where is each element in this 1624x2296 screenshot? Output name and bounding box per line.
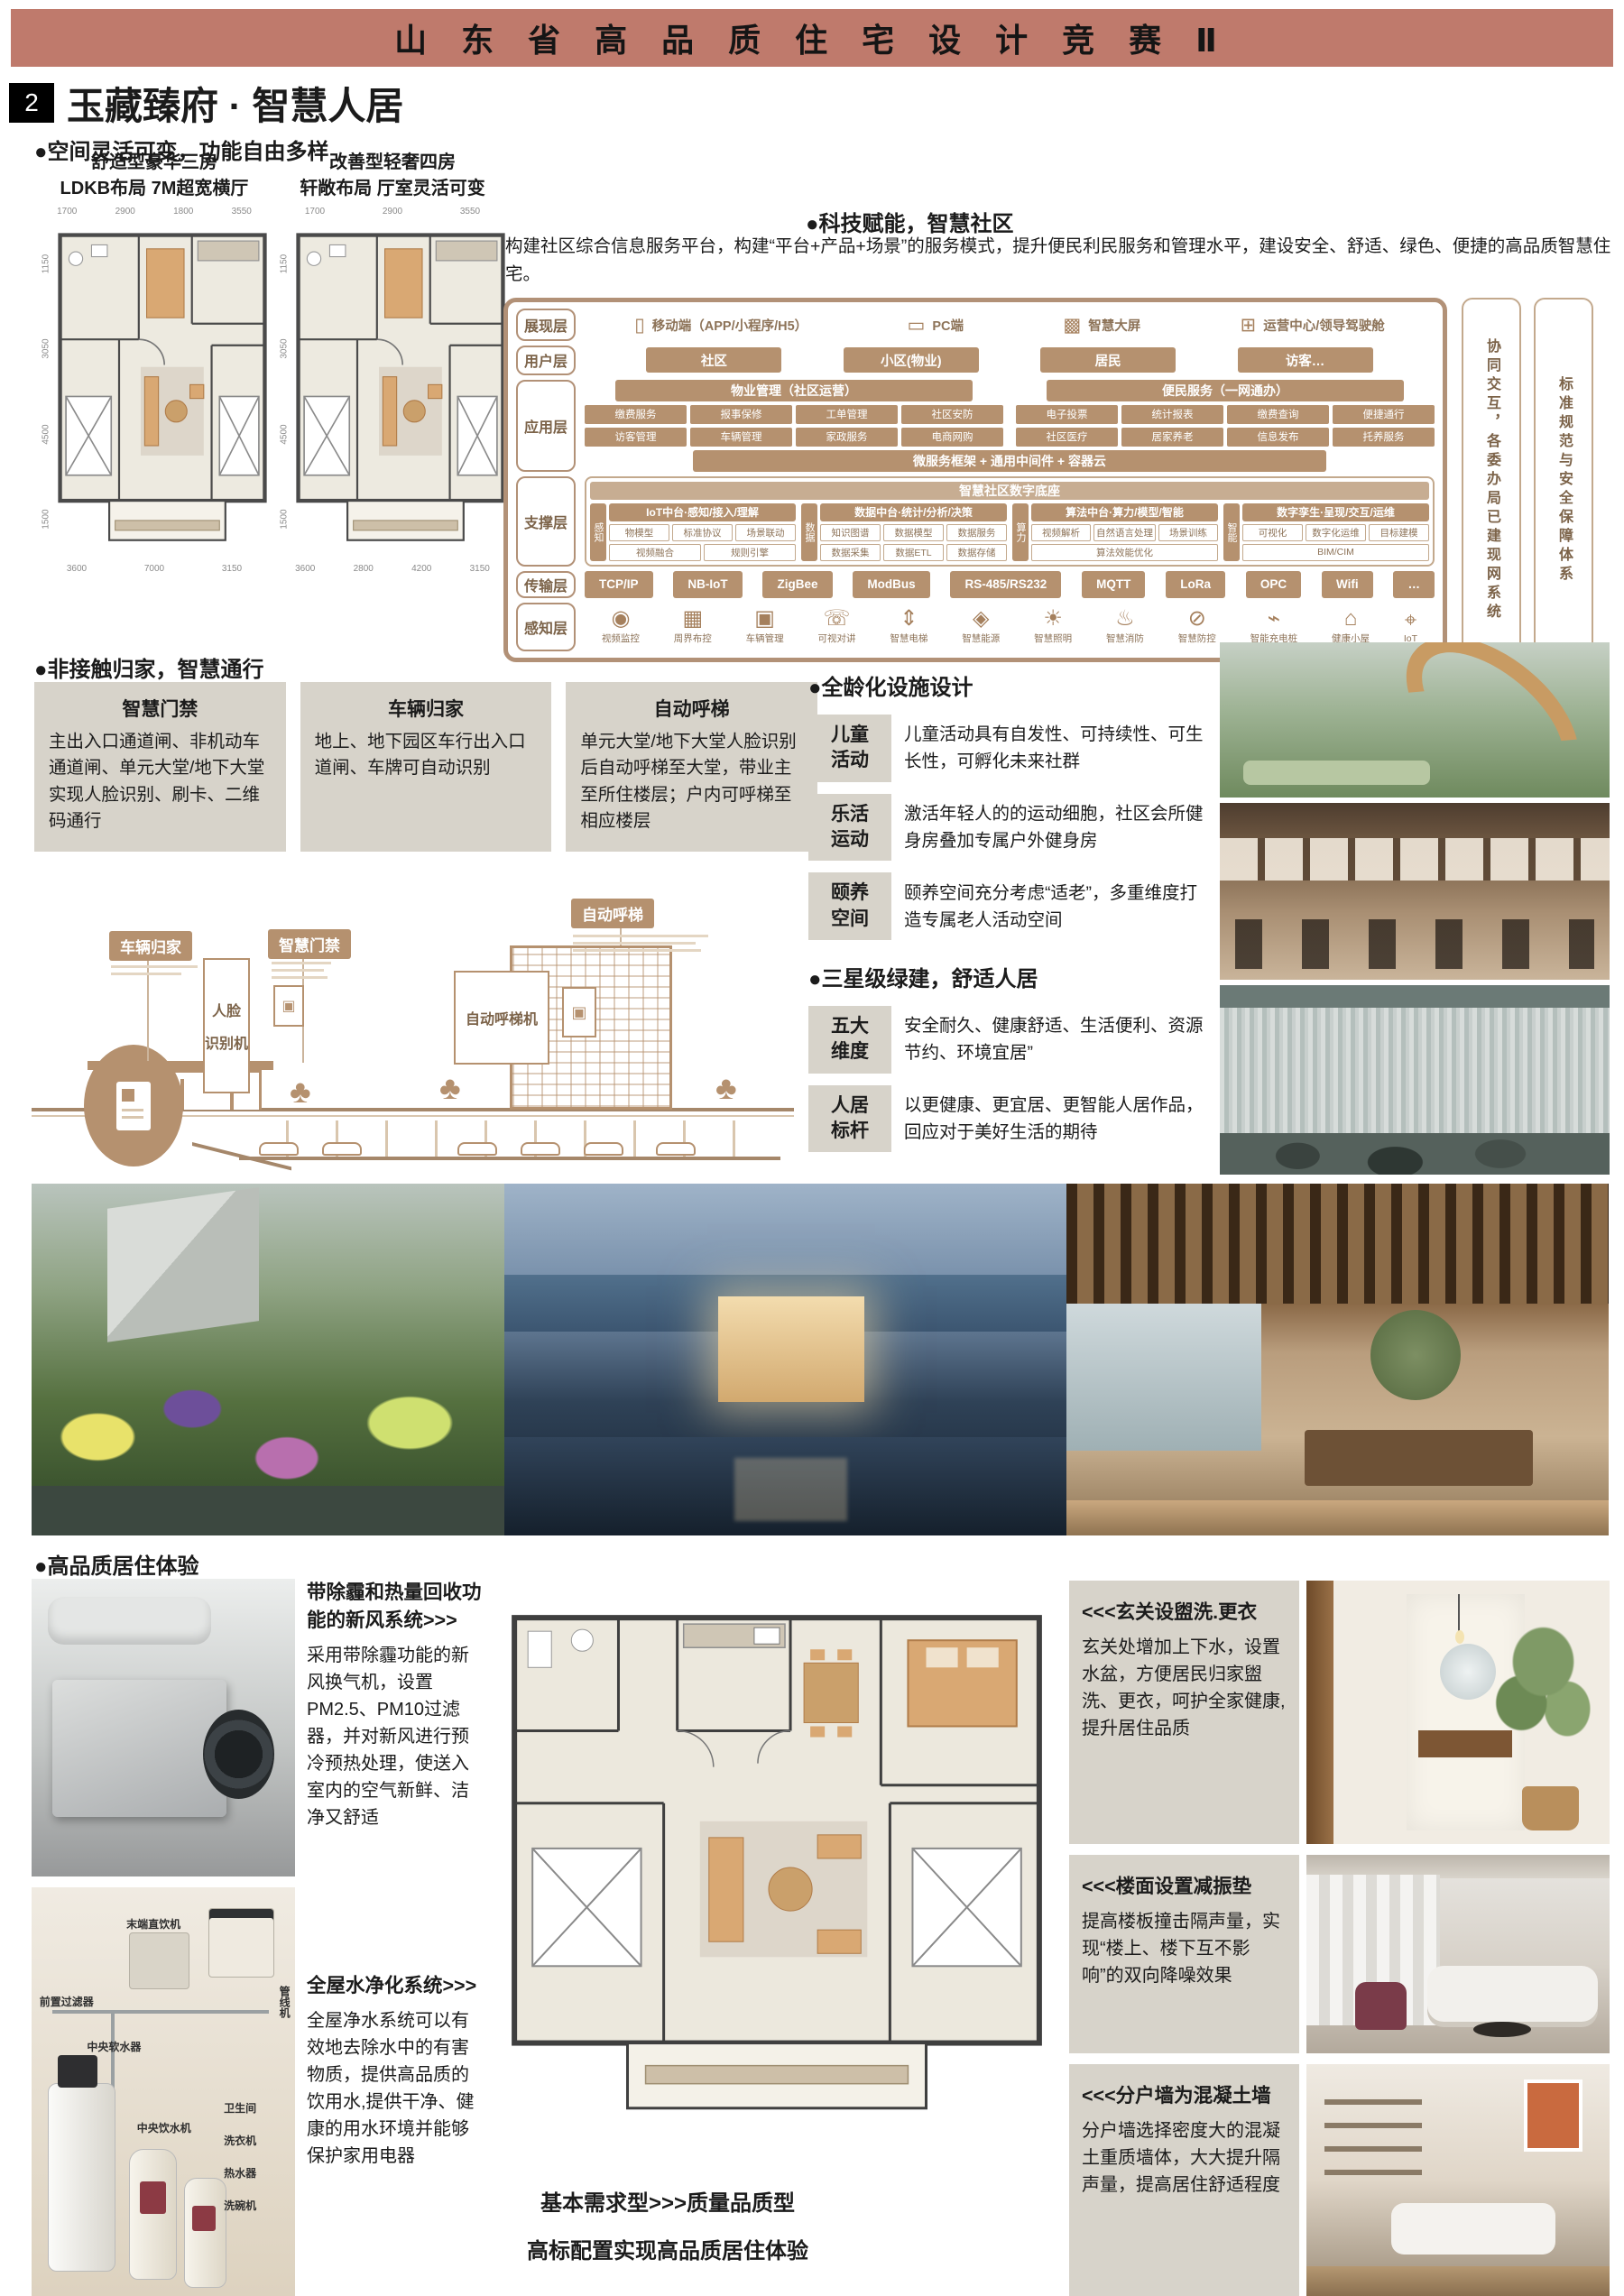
fresh-air-body: 采用带除霾功能的新风换气机，设置PM2.5、PM10过滤器，并对新风进行预冷预热… [307, 1642, 482, 1831]
car-icon [521, 1142, 560, 1156]
layer-label-application: 应用层 [516, 380, 576, 472]
face-recognition-label: 人脸 识别机 [203, 958, 250, 1093]
air-duct-shape [48, 1597, 211, 1645]
perception-item-label: 车辆管理 [746, 632, 784, 645]
floor-plan-2-subcaption: 轩敞布局 厅室灵活可变 [276, 176, 509, 202]
side-bar-standards: 标准规范与安全保障体系 [1534, 298, 1593, 662]
dimension-label: 4500 [42, 424, 51, 444]
dimension-label: 3600 [67, 564, 87, 576]
gym-photo [1220, 803, 1610, 980]
protocol-chip: RS-485/RS232 [950, 571, 1061, 598]
tree-icon: ♣ [715, 1072, 737, 1104]
transport-layer: TCP/IPNB-IoTZigBeeModBusRS-485/RS232MQTT… [585, 571, 1435, 598]
wall-artwork [1527, 2083, 1579, 2148]
dusk-pool-photo [504, 1184, 1066, 1535]
wall-unit-shape [129, 1932, 189, 1989]
support-chip: 视频解析 [1031, 524, 1091, 541]
support-chip: BIM/CIM [1242, 544, 1429, 561]
support-chip: 数据采集 [820, 544, 881, 561]
fan-flange-shape [203, 1710, 274, 1799]
pipe-shape [52, 2010, 268, 2014]
perception-item-label: 智慧照明 [1034, 632, 1072, 645]
support-chip: 目标建模 [1369, 524, 1429, 541]
dimension-row-top: 170029003550 [276, 207, 509, 219]
presentation-item-label: 运营中心/领导驾驶舱 [1263, 316, 1385, 335]
all-age-heading: ●全龄化设施设计 [808, 669, 1213, 701]
softener-tank-shape [129, 2149, 177, 2280]
health-hut-icon: ⌂ [1344, 608, 1358, 630]
caption-line [111, 965, 198, 968]
app-chip: 车辆管理 [690, 428, 792, 447]
support-chip: 场景联动 [735, 524, 796, 541]
wood-floor [1306, 2266, 1610, 2296]
support-group-title: 数字孪生·呈现/交互/运维 [1242, 503, 1429, 521]
perception-item: ⌂ 健康小屋 [1332, 608, 1370, 645]
app-chip: 工单管理 [796, 405, 898, 424]
car-icon [322, 1142, 362, 1156]
iot-icon: ⌖ [1405, 610, 1417, 632]
face-label-line: 识别机 [205, 1031, 248, 1053]
wall-shelving [1324, 2088, 1422, 2176]
app-chip: 信息发布 [1227, 428, 1329, 447]
caption-line [272, 962, 331, 964]
auto-call-label: 自动呼梯 [571, 899, 654, 928]
dimension-label: 1150 [280, 254, 290, 273]
elevator-icon: ⇕ [900, 608, 918, 630]
support-chip: 自然语言处理 [1093, 524, 1156, 541]
water-label: 中央软水器 [87, 2039, 141, 2054]
living-room-photo-2 [1306, 2064, 1610, 2296]
entry-bathroom-photo [1306, 1581, 1610, 1844]
garden-photo [32, 1184, 504, 1535]
access-card-icon [116, 1082, 151, 1130]
ops-center-icon: ⊞ [1241, 314, 1257, 337]
app-group-services: 便民服务（一网通办） 电子投票统计报表缴费查询便捷通行社区医疗居家养老信息发布托… [1016, 380, 1435, 447]
dimension-label: 2900 [115, 207, 135, 219]
access-boxes: 智慧门禁 主出入口通道闸、非机动车通道闸、单元大堂/地下大堂实现人脸识别、刷卡、… [34, 682, 817, 852]
floor-plan-drawing [292, 221, 509, 562]
perception-item: ⊘ 智慧防控 [1178, 608, 1216, 645]
row-tag: 人居标杆 [808, 1085, 891, 1153]
support-tag: 感知 [590, 503, 606, 561]
support-group-data: 数据 数据中台·统计/分析/决策 知识图谱数据模型数据服务数据采集数据ETL数据… [801, 503, 1007, 561]
gym-machines-silhouette [1235, 919, 1593, 969]
water-label: 卫生间 [224, 2100, 256, 2116]
support-chip: 算法效能优化 [1031, 544, 1218, 561]
row-tag: 五大维度 [808, 1006, 891, 1074]
digital-base-banner: 智慧社区数字底座 [590, 482, 1429, 500]
support-group-title: IoT中台·感知/接入/理解 [609, 503, 796, 521]
vehicle-icon: ▣ [754, 608, 775, 630]
dimension-row-bottom: 3600280042003150 [276, 564, 509, 576]
dimension-label: 3050 [42, 339, 51, 359]
floor-damping-body: 提高楼板撞击隔声量，实现“楼上、楼下互不影响”的双向降噪效果 [1082, 1908, 1287, 1989]
plan-caption-line2: 高标配置实现高品质居住体验 [451, 2233, 884, 2264]
row-text: 儿童活动具有自发性、可持续性、可生长性，可孵化未来社群 [904, 721, 1213, 775]
protocol-chip: TCP/IP [585, 571, 653, 598]
support-tag: 数据 [801, 503, 817, 561]
caption-line [111, 973, 181, 975]
support-chip: 规则引擎 [704, 544, 796, 561]
potted-plant [1489, 1618, 1598, 1766]
dimension-label: 1700 [57, 207, 77, 219]
layer-label-perception: 感知层 [516, 603, 576, 651]
garden-planter-edge [32, 1486, 504, 1535]
caption-line [573, 935, 708, 937]
water-label: 中央饮水机 [137, 2120, 191, 2135]
protocol-chip: MQTT [1082, 571, 1145, 598]
camera-icon: ◉ [611, 608, 630, 630]
car-icon [259, 1142, 299, 1156]
access-box-title: 智慧门禁 [49, 695, 272, 722]
glass-wall [1066, 1304, 1261, 1452]
perception-item: ◉ 视频监控 [602, 608, 640, 645]
perception-item: ☏ 可视对讲 [818, 608, 856, 645]
door-access-label: 智慧门禁 [268, 929, 351, 959]
water-label: 前置过滤器 [40, 1994, 94, 2009]
dimension-label: 1500 [42, 510, 51, 530]
dimension-label: 4500 [280, 424, 290, 444]
tree-icon: ♣ [290, 1075, 311, 1108]
layer-label-transport: 传输层 [516, 571, 576, 598]
app-chip: 报事保修 [690, 405, 792, 424]
ventilation-unit-shape [52, 1680, 226, 1817]
charging-pile-icon: ⌁ [1268, 608, 1280, 630]
tank-badge [140, 2181, 166, 2214]
indoor-tree [1370, 1310, 1461, 1400]
lobby-sofa [1305, 1430, 1532, 1486]
softener-tank-shape [184, 2178, 226, 2288]
big-screen-icon: ▩ [1063, 314, 1081, 337]
floor-plan-1-subcaption: LDKB布局 7M超宽横厅 [38, 176, 271, 202]
dimension-label: 1500 [280, 510, 290, 530]
support-chip: 场景训练 [1158, 524, 1218, 541]
dimension-col-left: 1150305045001500 [276, 221, 292, 562]
dimension-label: 1150 [42, 254, 51, 273]
protocol-chip: ModBus [853, 571, 929, 598]
lobby-photo [1066, 1184, 1609, 1535]
protocol-chip: Wifi [1322, 571, 1373, 598]
access-box-vehicle: 车辆归家 地上、地下园区车行出入口道闸、车牌可自动识别 [300, 682, 552, 852]
row-tag: 儿童活动 [808, 715, 891, 782]
support-group-title: 算法中台·算力/模型/智能 [1031, 503, 1218, 521]
water-text-block: 全屋水净化系统>>> 全屋净水系统可以有效地去除水中的有害物质，提供高品质的饮用… [307, 1972, 482, 2170]
floor-damping-title: <<<楼面设置减振垫 [1082, 1871, 1287, 1899]
user-chip: 小区(物业) [844, 347, 979, 373]
header-band: 山 东 省 高 品 质 住 宅 设 计 竞 赛 Ⅱ [11, 9, 1613, 67]
user-chip: 社区 [646, 347, 781, 373]
access-heading: ●非接触归家，智慧通行 [34, 651, 264, 683]
app-chip: 电商网购 [901, 428, 1003, 447]
row-text: 安全耐久、健康舒适、生活便利、资源节约、环境宜居” [904, 1012, 1213, 1066]
app-chip: 缴费服务 [585, 405, 687, 424]
app-group-property: 物业管理（社区运营） 缴费服务报事保修工单管理社区安防访客管理车辆管理家政服务电… [585, 380, 1003, 447]
perception-item-label: 智慧电梯 [890, 632, 927, 645]
energy-icon: ◈ [973, 608, 989, 630]
all-age-column: ●全龄化设施设计 儿童活动 儿童活动具有自发性、可持续性、可生长性，可孵化未来社… [808, 669, 1213, 1152]
perception-item: ▣ 车辆管理 [746, 608, 784, 645]
project-title: 玉藏臻府 · 智慧人居 [67, 76, 403, 131]
dimension-label: 3550 [232, 207, 252, 219]
big-plan-caption: 基本需求型>>>质量品质型 高标配置实现高品质居住体验 [451, 2185, 884, 2264]
green-row-dimensions: 五大维度 安全耐久、健康舒适、生活便利、资源节约、环境宜居” [808, 1006, 1213, 1074]
dimension-row-top: 1700290018003550 [38, 207, 271, 219]
dimension-label: 3050 [280, 339, 290, 359]
microservice-bar: 微服务框架 + 通用中间件 + 容器云 [693, 450, 1326, 472]
app-chip: 社区安防 [901, 405, 1003, 424]
user-chip: 居民 [1040, 347, 1176, 373]
app-chip: 社区医疗 [1016, 428, 1118, 447]
floor-plan-drawing [54, 221, 271, 562]
row-text: 激活年轻人的的运动细胞，社区会所健身房叠加专属户外健身房 [904, 800, 1213, 854]
plan-caption-line1: 基本需求型>>>质量品质型 [451, 2185, 884, 2217]
support-chip: 数据ETL [883, 544, 944, 561]
app-chip: 便捷通行 [1333, 405, 1435, 424]
garden-steps-shape [107, 1187, 259, 1342]
perception-item: ⇕ 智慧电梯 [890, 608, 927, 645]
floor-damping-text-block: <<<楼面设置减振垫 提高楼板撞击隔声量，实现“楼上、楼下互不影响”的双向降噪效… [1069, 1855, 1299, 2053]
dimension-col-left: 1150305045001500 [38, 221, 54, 562]
presentation-item: ▯ 移动端（APP/小程序/H5） [634, 314, 807, 337]
support-tag: 智能 [1223, 503, 1240, 561]
smart-tech-intro: 构建社区综合信息服务平台，构建“平台+产品+场景”的服务模式，提升便民利民服务和… [505, 233, 1611, 289]
white-sofa [1391, 2203, 1555, 2255]
perception-item: ☀ 智慧照明 [1034, 608, 1072, 645]
all-age-row-children: 儿童活动 儿童活动具有自发性、可持续性、可生长性，可孵化未来社群 [808, 715, 1213, 782]
water-tank-shape [48, 2083, 116, 2271]
coffee-table [1473, 2022, 1531, 2038]
accent-chair [1355, 1982, 1407, 2030]
support-group-twin: 智能 数字孪生·呈现/交互/运维 可视化数字化运维目标建模BIM/CIM [1223, 503, 1429, 561]
all-age-row-sport: 乐活运动 激活年轻人的的运动细胞，社区会所健身房叠加专属户外健身房 [808, 794, 1213, 862]
water-label: 洗碗机 [224, 2198, 256, 2213]
pendant-cord [1458, 1594, 1460, 1634]
white-sofa [1427, 1966, 1597, 2022]
smart-community-architecture-diagram: 展现层 ▯ 移动端（APP/小程序/H5） ▭ PC端 ▩ 智慧大屏 ⊞ 运营中… [503, 298, 1447, 662]
large-floor-plan-drawing [492, 1577, 1062, 2174]
presentation-item-label: 智慧大屏 [1088, 316, 1140, 335]
quality-heading: ●高品质居住体验 [34, 1548, 199, 1580]
lit-pavilion-shape [718, 1296, 864, 1402]
perception-item: ⌖ IoT [1404, 610, 1417, 644]
all-age-row-elder: 颐养空间 颐养空间充分考虑“适老”，多重维度打造专属老人活动空间 [808, 872, 1213, 940]
perception-item: ▦ 周界布控 [674, 608, 712, 645]
perception-item: ♨ 智慧消防 [1106, 608, 1144, 645]
tree-icon: ♣ [439, 1072, 461, 1104]
protocol-chip: … [1393, 571, 1435, 598]
support-chip: 数据模型 [883, 524, 944, 541]
access-box-body: 地上、地下园区车行出入口道闸、车牌可自动识别 [315, 729, 538, 782]
car-home-label: 车辆归家 [109, 931, 192, 961]
garage-ramp [192, 1110, 291, 1170]
slat-ceiling [1066, 1184, 1609, 1304]
row-text: 以更健康、更宜居、更智能人居作品，回应对于美好生活的期待 [904, 1092, 1213, 1146]
layer-label-presentation: 展现层 [516, 309, 576, 341]
app-group-title: 物业管理（社区运营） [615, 380, 973, 401]
dimension-label: 2900 [383, 207, 402, 219]
support-chip: 物模型 [609, 524, 669, 541]
fire-hydrant-icon: ♨ [1115, 608, 1135, 630]
round-mirror [1440, 1644, 1496, 1700]
protocol-chip: ZigBee [762, 571, 832, 598]
perception-item-label: 视频监控 [602, 632, 640, 645]
app-group-title: 便民服务（一网通办） [1047, 380, 1404, 401]
party-wall-body: 分户墙选择密度大的混凝土重质墙体，大大提升隔声量，提高居住舒适程度 [1082, 2117, 1287, 2199]
car-icon [457, 1142, 497, 1156]
pc-icon: ▭ [908, 314, 926, 337]
support-group-iot: 感知 IoT中台·感知/接入/理解 物模型标准协议场景联动视频融合规则引擎 [590, 503, 796, 561]
tank-badge [192, 2206, 216, 2230]
access-box-body: 单元大堂/地下大堂人脸识别后自动呼梯至大堂，带业主至所住楼层；户内可呼梯至相应楼… [580, 729, 803, 834]
layer-label-users: 用户层 [516, 346, 576, 375]
water-label: 热水器 [224, 2165, 256, 2181]
access-box-body: 主出入口通道闸、非机动车通道闸、单元大堂/地下大堂实现人脸识别、刷卡、二维码通行 [49, 729, 272, 834]
floor-plan-1-caption: 舒适型豪华三房 [38, 150, 271, 176]
row-tag: 颐养空间 [808, 872, 891, 940]
security-icon: ⊘ [1188, 608, 1206, 630]
floor-plan-1: 舒适型豪华三房 LDKB布局 7M超宽横厅 1700290018003550 1… [38, 150, 271, 576]
presentation-item-label: PC端 [932, 316, 964, 335]
perception-item-label: 可视对讲 [818, 632, 856, 645]
party-wall-title: <<<分户墙为混凝土墙 [1082, 2080, 1287, 2108]
access-card-zoom-bubble [84, 1045, 183, 1166]
fresh-air-unit-photo [32, 1579, 295, 1876]
perimeter-icon: ▦ [682, 608, 703, 630]
gym-window-band [1220, 838, 1610, 881]
waterfall-top-edge [1220, 985, 1610, 1008]
row-text: 颐养空间充分考虑“适老”，多重维度打造专属老人活动空间 [904, 880, 1213, 934]
app-chip: 访客管理 [585, 428, 687, 447]
perception-item: ◈ 智慧能源 [962, 608, 1000, 645]
competition-poster-page: 山 东 省 高 品 质 住 宅 设 计 竞 赛 Ⅱ 2 玉藏臻府 · 智慧人居 … [0, 0, 1624, 2296]
caption-line [272, 969, 324, 972]
caption-line [573, 949, 701, 952]
dimension-label: 3150 [470, 564, 490, 576]
dimension-label: 3600 [295, 564, 315, 576]
mobile-icon: ▯ [634, 314, 645, 337]
green-heading: ●三星级绿建，舒适人居 [808, 961, 1213, 992]
presentation-item: ▭ PC端 [908, 314, 964, 337]
water-purification-photo: 前置过滤器 末端直饮机 管线机 中央软水器 中央饮水机 卫生间 洗衣机 热水器 … [32, 1887, 295, 2296]
play-mat-shape [1243, 761, 1430, 786]
access-box-title: 车辆归家 [315, 695, 538, 722]
lighting-icon: ☀ [1043, 608, 1063, 630]
row-tag: 乐活运动 [808, 794, 891, 862]
party-wall-text-block: <<<分户墙为混凝土墙 分户墙选择密度大的混凝土重质墙体，大大提升隔声量，提高居… [1069, 2064, 1299, 2296]
app-chip: 电子投票 [1016, 405, 1118, 424]
access-box-door: 智慧门禁 主出入口通道闸、非机动车通道闸、单元大堂/地下大堂实现人脸识别、刷卡、… [34, 682, 286, 852]
valve-head-shape [58, 2055, 97, 2088]
caption-line [573, 942, 696, 945]
entry-washing-title: <<<玄关设盥洗.更衣 [1082, 1597, 1287, 1625]
entry-washing-body: 玄关处增加上下水，设置水盆，方便居民归家盥洗、更衣，呵护全家健康,提升居住品质 [1082, 1634, 1287, 1742]
support-chip: 数字化运维 [1306, 524, 1366, 541]
dimension-label: 4200 [411, 564, 431, 576]
support-chip: 数据存储 [946, 544, 1007, 561]
support-group-algorithm: 算力 算法中台·算力/模型/智能 视频解析自然语言处理场景训练算法效能优化 [1012, 503, 1218, 561]
living-room-photo-1 [1306, 1855, 1610, 2053]
protocol-chip: NB-IoT [673, 571, 742, 598]
water-label: 管线机 [277, 1986, 292, 2018]
call-machine-label: 自动呼梯机 [454, 971, 549, 1065]
side-bar-collaboration: 协同交互，各委办局已建现网系统 [1462, 298, 1521, 662]
pool-reflection [734, 1458, 847, 1521]
user-chip: 访客… [1238, 347, 1373, 373]
layer-label-support: 支撑层 [516, 476, 576, 567]
car-icon [584, 1142, 623, 1156]
pipeline-machine-shape [208, 1908, 274, 1978]
protocol-chip: OPC [1246, 571, 1301, 598]
face-label-line: 人脸 [212, 999, 241, 1020]
waterfall-rocks [1220, 1133, 1610, 1175]
water-label: 洗衣机 [224, 2133, 256, 2148]
water-body: 全屋净水系统可以有效地去除水中的有害物质，提供高品质的饮用水,提供干净、健康的用… [307, 2007, 482, 2170]
water-label: 末端直饮机 [126, 1916, 180, 1932]
waterfall-photo [1220, 985, 1610, 1175]
app-chip: 托养服务 [1333, 428, 1435, 447]
app-chip: 居家养老 [1121, 428, 1223, 447]
app-chip: 统计报表 [1121, 405, 1223, 424]
support-chip: 数据服务 [946, 524, 1007, 541]
water-title: 全屋水净化系统>>> [307, 1972, 482, 2000]
dimension-row-bottom: 360070003150 [38, 564, 271, 576]
playground-photo [1220, 642, 1610, 798]
smart-access-illustration: ♣ ♣ ♣ 车辆归家 智慧门禁 ▣ 人脸 识别机 自动呼梯 自动呼梯机 ▣ [32, 864, 794, 1176]
fresh-air-title: 带除霾和热量回收功能的新风系统>>> [307, 1579, 482, 1635]
caption-line [272, 976, 328, 979]
floor-plan-2: 改善型轻奢四房 轩敞布局 厅室灵活可变 170029003550 1150305… [276, 150, 509, 576]
support-chip: 可视化 [1242, 524, 1303, 541]
intercom-icon: ☏ [823, 608, 850, 630]
access-box-title: 自动呼梯 [580, 695, 803, 722]
woven-basket [1522, 1786, 1580, 1831]
pendant-bulb [1455, 1630, 1464, 1644]
door-frame [1306, 1581, 1333, 1844]
perception-item-label: 周界布控 [674, 632, 712, 645]
dimension-label: 3150 [222, 564, 242, 576]
protocol-chip: LoRa [1166, 571, 1225, 598]
perception-item-label: 智慧消防 [1106, 632, 1144, 645]
floor-plan-2-caption: 改善型轻奢四房 [276, 150, 509, 176]
application-layer: 物业管理（社区运营） 缴费服务报事保修工单管理社区安防访客管理车辆管理家政服务电… [585, 380, 1435, 472]
underground-garage [239, 1120, 780, 1160]
door-panel-icon: ▣ [273, 985, 304, 1027]
presentation-item: ⊞ 运营中心/领导驾驶舱 [1241, 314, 1385, 337]
presentation-item: ▩ 智慧大屏 [1063, 314, 1140, 337]
section-number-badge: 2 [9, 83, 54, 123]
dimension-label: 2800 [354, 564, 374, 576]
app-chip: 家政服务 [796, 428, 898, 447]
call-panel-icon: ▣ [562, 987, 596, 1037]
presentation-layer: ▯ 移动端（APP/小程序/H5） ▭ PC端 ▩ 智慧大屏 ⊞ 运营中心/领导… [585, 309, 1435, 341]
perception-item-label: 智慧防控 [1178, 632, 1216, 645]
access-box-elevator: 自动呼梯 单元大堂/地下大堂人脸识别后自动呼梯至大堂，带业主至所住楼层；户内可呼… [566, 682, 817, 852]
dimension-label: 3550 [460, 207, 480, 219]
competition-title: 山 东 省 高 品 质 住 宅 设 计 竞 赛 Ⅱ [394, 14, 1230, 61]
perception-item: ⌁ 智能充电桩 [1250, 608, 1298, 645]
fresh-air-text-block: 带除霾和热量回收功能的新风系统>>> 采用带除霾功能的新风换气机，设置PM2.5… [307, 1579, 482, 1831]
presentation-item-label: 移动端（APP/小程序/H5） [652, 316, 807, 335]
green-row-benchmark: 人居标杆 以更健康、更宜居、更智能人居作品，回应对于美好生活的期待 [808, 1085, 1213, 1153]
support-chip: 标准协议 [672, 524, 733, 541]
perception-item-label: 智慧能源 [962, 632, 1000, 645]
dimension-label: 1700 [305, 207, 325, 219]
support-group-title: 数据中台·统计/分析/决策 [820, 503, 1007, 521]
app-chip: 缴费查询 [1227, 405, 1329, 424]
dimension-label: 1800 [173, 207, 193, 219]
lobby-floor [1066, 1500, 1609, 1535]
user-layer: 社区小区(物业)居民访客… [585, 346, 1435, 375]
